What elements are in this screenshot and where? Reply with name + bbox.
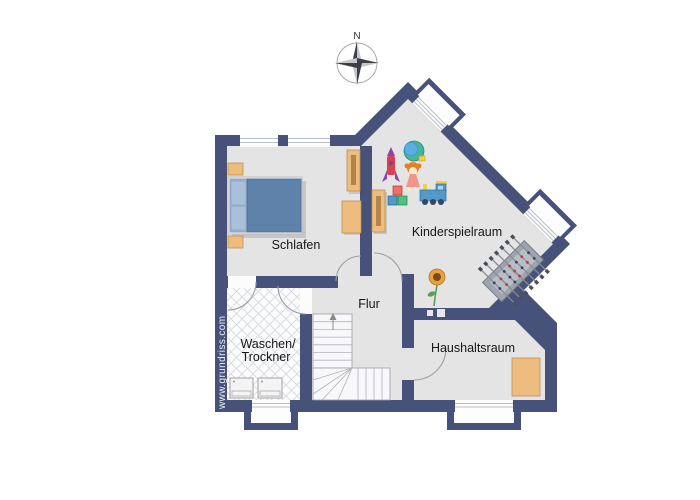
- nightstand-icon: [228, 236, 243, 248]
- door-opening-waschen-flur: [300, 286, 312, 314]
- label-waschen-line1: Waschen/: [240, 337, 296, 351]
- nightstand-icon: [228, 163, 243, 175]
- door-opening-haushaltsraum: [402, 348, 414, 380]
- compass-north-label: N: [353, 31, 360, 42]
- window-bay-haushaltsraum: [447, 400, 521, 430]
- label-schlafen: Schlafen: [272, 238, 321, 252]
- watermark-text: www.grundriss.com: [217, 316, 228, 411]
- label-flur: Flur: [358, 297, 380, 311]
- cabinet-icon: [512, 358, 540, 396]
- label-waschen-line2: Trockner: [242, 350, 291, 364]
- label-kinderspielraum: Kinderspielraum: [412, 225, 502, 239]
- door-opening-schlafen: [338, 276, 360, 288]
- floor-plan-canvas: N: [0, 0, 700, 500]
- wall-duct: [437, 309, 445, 317]
- window-schlafen-right: [288, 135, 330, 147]
- double-bed-icon: [228, 177, 306, 238]
- wardrobe-icon: [347, 150, 362, 194]
- label-haushaltsraum: Haushaltsraum: [431, 341, 515, 355]
- wall-duct: [427, 310, 433, 316]
- wardrobe-icon: [372, 190, 387, 234]
- washing-machine-icon: [230, 378, 253, 398]
- window-schlafen-left: [240, 135, 278, 147]
- window-bay-waschen: [244, 400, 298, 430]
- desk-icon: [342, 201, 363, 235]
- door-opening-waschen-top: [228, 276, 256, 288]
- floor-plan-page: N: [0, 0, 700, 500]
- dryer-icon: [258, 378, 282, 398]
